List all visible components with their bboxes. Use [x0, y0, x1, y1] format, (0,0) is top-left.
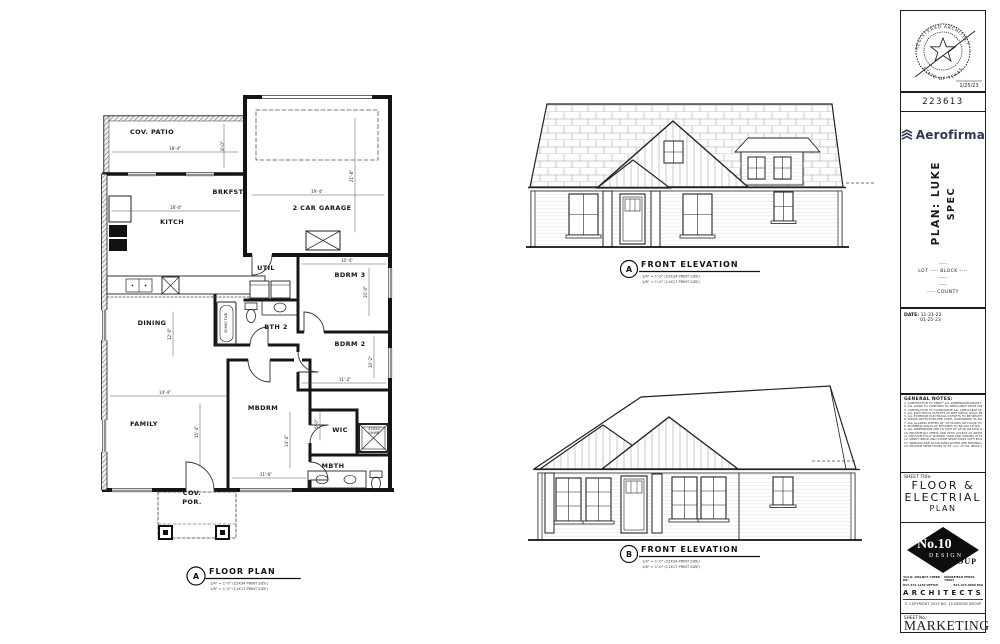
drawing-canvas: COV. PATIOBRKFSTKITCH2 CAR GARAGEUTILBDR… [0, 0, 1000, 644]
dimension-label: 10'-0" [363, 286, 368, 298]
copyright-line: © COPYRIGHT 2023 NO. 10 DESIGN GROUP [903, 599, 983, 606]
room-label: FAMILY [130, 420, 158, 428]
elevation-b: B FRONT ELEVATION 1/4" = 1'-0" (22X34 PR… [528, 386, 862, 569]
plan-sheet: COV. PATIOBRKFSTKITCH2 CAR GARAGEUTILBDR… [0, 0, 1000, 644]
dimension-label: 19'-4" [311, 189, 323, 194]
callout-scale: 1/4" = 1'-0" (22X34 PRINT SIZE) [210, 582, 268, 586]
site-line: ---- [939, 275, 947, 282]
plan-name-section: PLAN: LUKE SPEC [901, 157, 985, 250]
site-line: ---- [939, 261, 947, 268]
architects-label: ARCHITECTS [903, 589, 983, 597]
svg-text:REGISTERED ARCHITECT: REGISTERED ARCHITECT [914, 24, 971, 50]
seal-arc-top: REGISTERED ARCHITECT [914, 24, 971, 50]
room-label: COV. [183, 489, 201, 497]
site-line: LOT ---- BLOCK ---- [918, 268, 967, 275]
dimension-label: 14'-4" [159, 390, 171, 395]
fixture-label: SHWR [368, 431, 380, 435]
callout-scale: 1/4" = 1'-0" (22X34 PRINT SIZE) [642, 275, 700, 279]
brand-name: Aerofirma [916, 128, 985, 142]
stamp-date: 1/25/23 [959, 83, 978, 89]
firm-section: No.10 DESIGN GROUP 314 N. WALNUT CREEK D… [901, 522, 985, 613]
firm-no10: No.10 [917, 537, 952, 553]
dimension-label: 5'-0" [314, 419, 319, 429]
porch-a [603, 191, 660, 247]
utility-fixtures [250, 281, 290, 298]
dimension-label: 15'-4" [194, 426, 199, 438]
callout-title: FRONT ELEVATION [641, 260, 739, 269]
room-label: BDRM 3 [334, 271, 365, 279]
firm-phone-1: 817-473-1130 OFFICE [903, 584, 938, 587]
front-door-a [620, 194, 645, 244]
callout-scale: 1/8" = 1'-0" (11X17 PRINT SIZE) [642, 280, 700, 284]
plan-name: PLAN: LUKE [930, 161, 942, 245]
site-line: ---- [939, 282, 947, 289]
callout-letter: A [193, 572, 200, 581]
sheet-title-line: ELECTRIAL [904, 492, 982, 504]
firm-address-2: MANSFIELD TEXAS 76063 [944, 576, 983, 583]
front-door-b [621, 476, 647, 533]
sheet-title-section: SHEET Title: FLOOR & ELECTRIAL PLAN [901, 472, 985, 522]
sheet-title-line: PLAN [904, 503, 982, 515]
callout-letter: A [626, 265, 633, 274]
dimension-label: 8'-0" [220, 141, 225, 151]
dimension-label: 10'-2" [368, 356, 373, 368]
date-label: DATE: [904, 313, 919, 318]
room-label: 2 CAR GARAGE [293, 204, 352, 212]
site-line: ---- COUNTY [927, 289, 959, 296]
dimension-label: 14'-4" [284, 435, 289, 447]
room-label: DINING [138, 319, 167, 327]
seal-arc-bottom: STATE OF TEXAS [922, 66, 964, 81]
general-notes-section: GENERAL NOTES: 1. CONTRACTOR TO VERIFY A… [901, 393, 985, 472]
firm-group: GROUP [943, 557, 977, 566]
callout-title: FLOOR PLAN [209, 567, 276, 576]
date-section: DATE: 11-21-22 01-25-23 [901, 307, 985, 393]
fixture-label: 30X60 TUB [224, 312, 228, 333]
room-label: BRKFST [213, 188, 244, 196]
room-label: MBTH [322, 462, 345, 470]
floor-plan-callout: A FLOOR PLAN 1/4" = 1'-0" (22X34 PRINT S… [187, 567, 300, 591]
dimension-label: 11'-2" [339, 377, 351, 382]
dimension-label: 18'-4" [169, 146, 181, 151]
dimension-label: 10'-4" [341, 258, 353, 263]
svg-text:STATE OF TEXAS: STATE OF TEXAS [922, 66, 964, 81]
callout-scale: 1/8" = 1'-0" (11X17 PRINT SIZE) [210, 587, 268, 591]
room-label: KITCH [160, 218, 184, 226]
room-label: POR. [182, 498, 202, 506]
project-number: 223613 [922, 97, 963, 107]
firm-address-1: 314 N. WALNUT CREEK DR. [903, 576, 944, 583]
dimension-label: 18'-0" [170, 205, 182, 210]
project-number-section: 223613 [901, 91, 985, 111]
title-block: REGISTERED ARCHITECT STATE OF TEXAS 1/25… [900, 10, 986, 633]
aerofirma-logo-icon [901, 128, 913, 141]
architect-seal: REGISTERED ARCHITECT STATE OF TEXAS 1/25… [901, 11, 984, 91]
dimension-label: 21'-8" [349, 170, 354, 182]
firm-phone-2: 817-473-0666 FAX [953, 584, 983, 587]
callout-scale: 1/8" = 1'-0" (11X17 PRINT SIZE) [642, 565, 700, 569]
note-line: 14. PROVIDE WEEP HOLES AT 33" O.C. AT AL… [904, 445, 982, 448]
dimension-label: 11'-6" [260, 472, 272, 477]
brand-section: Aerofirma [901, 111, 985, 157]
seal-star [931, 38, 956, 61]
room-labels: COV. PATIOBRKFSTKITCH2 CAR GARAGEUTILBDR… [130, 128, 366, 506]
callout-scale: 1/4" = 1'-0" (22X34 PRINT SIZE) [642, 560, 700, 564]
room-label: BTH 2 [264, 323, 288, 331]
floor-plan: COV. PATIOBRKFSTKITCH2 CAR GARAGEUTILBDR… [100, 93, 394, 591]
firm-logo: No.10 DESIGN GROUP [903, 525, 983, 575]
elevation-a: A FRONT ELEVATION 1/4" = 1'-0" (22X34 PR… [526, 104, 876, 284]
room-label: WIC [332, 426, 348, 434]
attic-access [306, 231, 340, 250]
general-notes-list: 1. CONTRACTOR TO VERIFY ALL DIMENSIONS P… [904, 402, 982, 448]
site-lines: ----LOT ---- BLOCK ---------------- COUN… [901, 250, 985, 307]
plan-spec: SPEC [946, 187, 957, 220]
date-value-2: 01-25-23 [920, 318, 982, 323]
room-label: MBDRM [248, 404, 278, 412]
architect-stamp-section: REGISTERED ARCHITECT STATE OF TEXAS 1/25… [901, 11, 985, 91]
garage-door-dashed [256, 110, 378, 160]
sheet-number: MARKETING [904, 620, 982, 632]
room-label: UTIL [257, 264, 275, 272]
callout-letter: B [626, 550, 632, 559]
elevation-a-callout: A FRONT ELEVATION 1/4" = 1'-0" (22X34 PR… [621, 260, 761, 284]
room-label: BDRM 2 [334, 340, 365, 348]
room-label: COV. PATIO [130, 128, 174, 136]
elevation-b-callout: B FRONT ELEVATION 1/4" = 1'-0" (22X34 PR… [621, 545, 761, 569]
sheet-title-line: FLOOR & [904, 480, 982, 492]
dimension-label: 12'-0" [167, 328, 172, 340]
sheet-number-section: SHEET No.: MARKETING [901, 613, 985, 634]
callout-title: FRONT ELEVATION [641, 545, 739, 554]
